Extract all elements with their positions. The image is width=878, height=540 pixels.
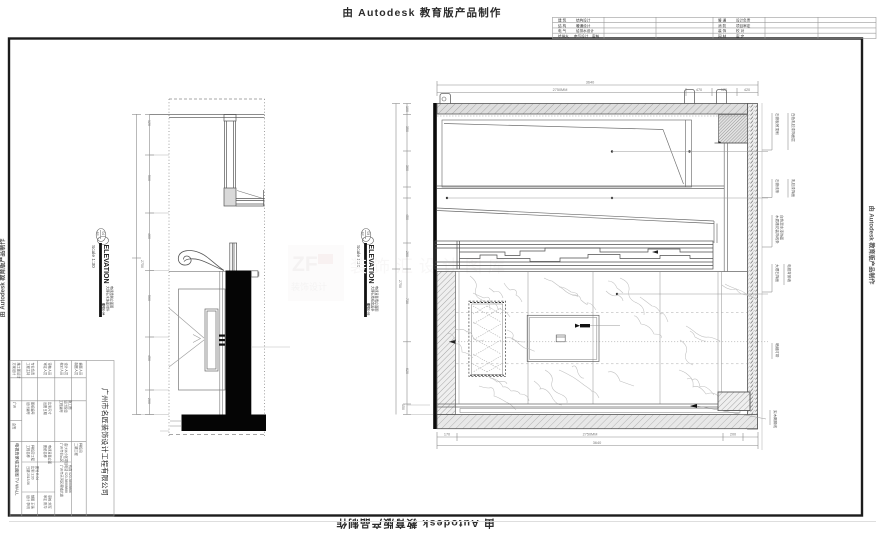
svg-text:金沙洲小区项目: 金沙洲小区项目 — [64, 443, 69, 465]
svg-text:350: 350 — [405, 126, 409, 132]
svg-text:由 Autodesk 教育版产品制作: 由 Autodesk 教育版产品制作 — [868, 206, 876, 285]
svg-text:170: 170 — [444, 433, 450, 437]
svg-text:传真 020-38888866: 传真 020-38888866 — [68, 465, 73, 493]
svg-text:工程名称: 工程名称 — [26, 445, 31, 459]
svg-text:620: 620 — [405, 368, 409, 374]
svg-text:比例尺寸: 比例尺寸 — [48, 402, 53, 416]
svg-text:2750MM: 2750MM — [553, 88, 568, 92]
svg-text:工程主持: 工程主持 — [26, 363, 31, 377]
svg-text:乳胶漆饰面: 乳胶漆饰面 — [791, 179, 796, 197]
svg-text:暖 通: 暖 通 — [718, 18, 727, 23]
svg-text:广州市天河区黄埔大道: 广州市天河区黄埔大道 — [60, 465, 65, 498]
svg-text:项目审定: 项目审定 — [736, 23, 751, 28]
svg-text:设计编号: 设计编号 — [26, 402, 31, 415]
svg-text:施工图设计: 施工图设计 — [17, 363, 22, 380]
svg-text:设计负责: 设计负责 — [736, 18, 751, 23]
svg-text:由 Autodesk 教育版产品制作: 由 Autodesk 教育版产品制作 — [342, 6, 501, 19]
svg-text:装饰汇设计图库: 装饰汇设计图库 — [350, 257, 511, 276]
svg-text:广州市白云区: 广州市白云区 — [60, 443, 65, 463]
svg-text:3640: 3640 — [593, 441, 601, 445]
svg-text:会签: 会签 — [12, 423, 17, 430]
svg-text:结 构: 结 构 — [558, 23, 567, 28]
svg-text:730: 730 — [405, 298, 409, 304]
svg-text:由 Autodesk 教育版产品制作: 由 Autodesk 教育版产品制作 — [335, 517, 494, 530]
svg-text:03: 03 — [366, 232, 370, 236]
svg-text:200: 200 — [147, 398, 151, 404]
svg-text:电视背景墙: 电视背景墙 — [787, 264, 792, 282]
svg-text:木质雕花装饰线条: 木质雕花装饰线条 — [775, 215, 780, 244]
svg-text:暖通设计: 暖通设计 — [576, 23, 591, 28]
svg-text:200: 200 — [730, 433, 736, 437]
svg-text:比例 1:30: 比例 1:30 — [31, 466, 36, 480]
svg-text:图纸编号: 图纸编号 — [31, 402, 36, 415]
svg-text:白色混水漆饰面: 白色混水漆饰面 — [780, 215, 785, 241]
svg-text:由 Autodesk 教育版产品制作: 由 Autodesk 教育版产品制作 — [0, 239, 7, 318]
svg-text:设计 李明: 设计 李明 — [26, 495, 31, 509]
svg-text:E4: E4 — [96, 232, 100, 236]
svg-text:470: 470 — [696, 88, 702, 92]
svg-text:广州市名匠装饰设计工程有限公司: 广州市名匠装饰设计工程有限公司 — [101, 388, 110, 496]
svg-text:石膏板吊顶刷: 石膏板吊顶刷 — [775, 113, 780, 135]
svg-text:ZF: ZF — [292, 253, 318, 276]
svg-text:装饰设计: 装饰设计 — [291, 281, 327, 292]
svg-text:450: 450 — [405, 214, 409, 220]
svg-text:设计人员: 设计人员 — [64, 363, 69, 376]
svg-text:150: 150 — [401, 404, 405, 410]
svg-text:360: 360 — [405, 165, 409, 171]
svg-text:3640: 3640 — [586, 81, 594, 85]
svg-text:2750MM: 2750MM — [583, 433, 598, 437]
svg-text:样板房工程: 样板房工程 — [31, 445, 36, 462]
svg-text:白色乳胶漆饰面层: 白色乳胶漆饰面层 — [791, 113, 796, 142]
svg-text:制图人员: 制图人员 — [74, 363, 79, 376]
svg-text:出图日期: 出图日期 — [43, 402, 48, 415]
svg-text:建 筑: 建 筑 — [558, 18, 567, 23]
svg-text:Scale 1:30: Scale 1:30 — [90, 245, 96, 268]
svg-text:2750: 2750 — [398, 280, 402, 288]
svg-text:审核 刘军: 审核 刘军 — [48, 495, 53, 509]
svg-text:给排水: 给排水 — [558, 34, 569, 39]
svg-text:审定 陈华: 审定 陈华 — [43, 495, 48, 509]
svg-text:图纸名称: 图纸名称 — [43, 445, 48, 459]
svg-text:100: 100 — [405, 106, 409, 112]
svg-text:04: 04 — [101, 232, 105, 236]
svg-text:审核人员: 审核人员 — [48, 363, 53, 376]
svg-text:图号E-04: 图号E-04 — [102, 303, 107, 316]
svg-text:120: 120 — [147, 120, 151, 126]
svg-text:样板间: 样板间 — [79, 443, 84, 453]
svg-text:大理石饰面: 大理石饰面 — [775, 264, 780, 282]
svg-text:设计阶段: 设计阶段 — [64, 400, 69, 414]
svg-text:校对人员: 校对人员 — [60, 363, 65, 376]
svg-text:石膏线条: 石膏线条 — [775, 179, 780, 194]
svg-text:二期工程: 二期工程 — [74, 443, 79, 457]
svg-text:460: 460 — [147, 233, 151, 239]
svg-text:施工图: 施工图 — [68, 400, 73, 410]
svg-text:电视背景立面: 电视背景立面 — [48, 445, 53, 464]
svg-text:工程编号: 工程编号 — [59, 400, 64, 413]
svg-text:描图人员: 描图人员 — [79, 363, 84, 376]
svg-text:420: 420 — [744, 88, 750, 92]
svg-text:E3: E3 — [361, 232, 365, 236]
svg-text:实木踢脚线: 实木踢脚线 — [773, 410, 778, 428]
svg-text:450: 450 — [147, 355, 151, 361]
svg-text:电气设计: 电气设计 — [574, 34, 589, 39]
svg-text:消 防: 消 防 — [718, 23, 727, 28]
svg-text:给排水设计: 给排水设计 — [576, 28, 594, 33]
svg-text:校 对: 校 对 — [736, 28, 745, 33]
svg-text:广州: 广州 — [13, 402, 18, 408]
svg-text:制图 王强: 制图 王强 — [31, 495, 36, 509]
svg-text:装 饰: 装 饰 — [718, 28, 727, 33]
svg-text:560: 560 — [147, 295, 151, 301]
svg-text:图号 E-04: 图号 E-04 — [35, 466, 40, 480]
svg-text:电 气: 电 气 — [558, 28, 567, 33]
svg-text:暗藏灯带: 暗藏灯带 — [775, 343, 780, 358]
svg-text:方案设计: 方案设计 — [12, 363, 17, 377]
svg-text:专业负责: 专业负责 — [31, 363, 36, 376]
svg-text:ELEVATION: ELEVATION — [102, 245, 109, 284]
svg-text:结构设计: 结构设计 — [576, 18, 591, 23]
svg-text:园 林: 园 林 — [718, 34, 727, 39]
svg-text:图号E-03: 图号E-03 — [367, 303, 372, 316]
svg-text:日期 2013.06: 日期 2013.06 — [26, 466, 31, 485]
svg-text:2750: 2750 — [140, 260, 144, 268]
svg-text:审 定: 审 定 — [736, 34, 745, 39]
svg-text:260: 260 — [405, 251, 409, 257]
svg-text:审定人员: 审定人员 — [43, 363, 48, 376]
svg-text:审核: 审核 — [592, 34, 600, 39]
svg-text:500: 500 — [147, 175, 151, 181]
svg-text:电视背景墙立面图 TV WALL: 电视背景墙立面图 TV WALL — [14, 443, 21, 496]
